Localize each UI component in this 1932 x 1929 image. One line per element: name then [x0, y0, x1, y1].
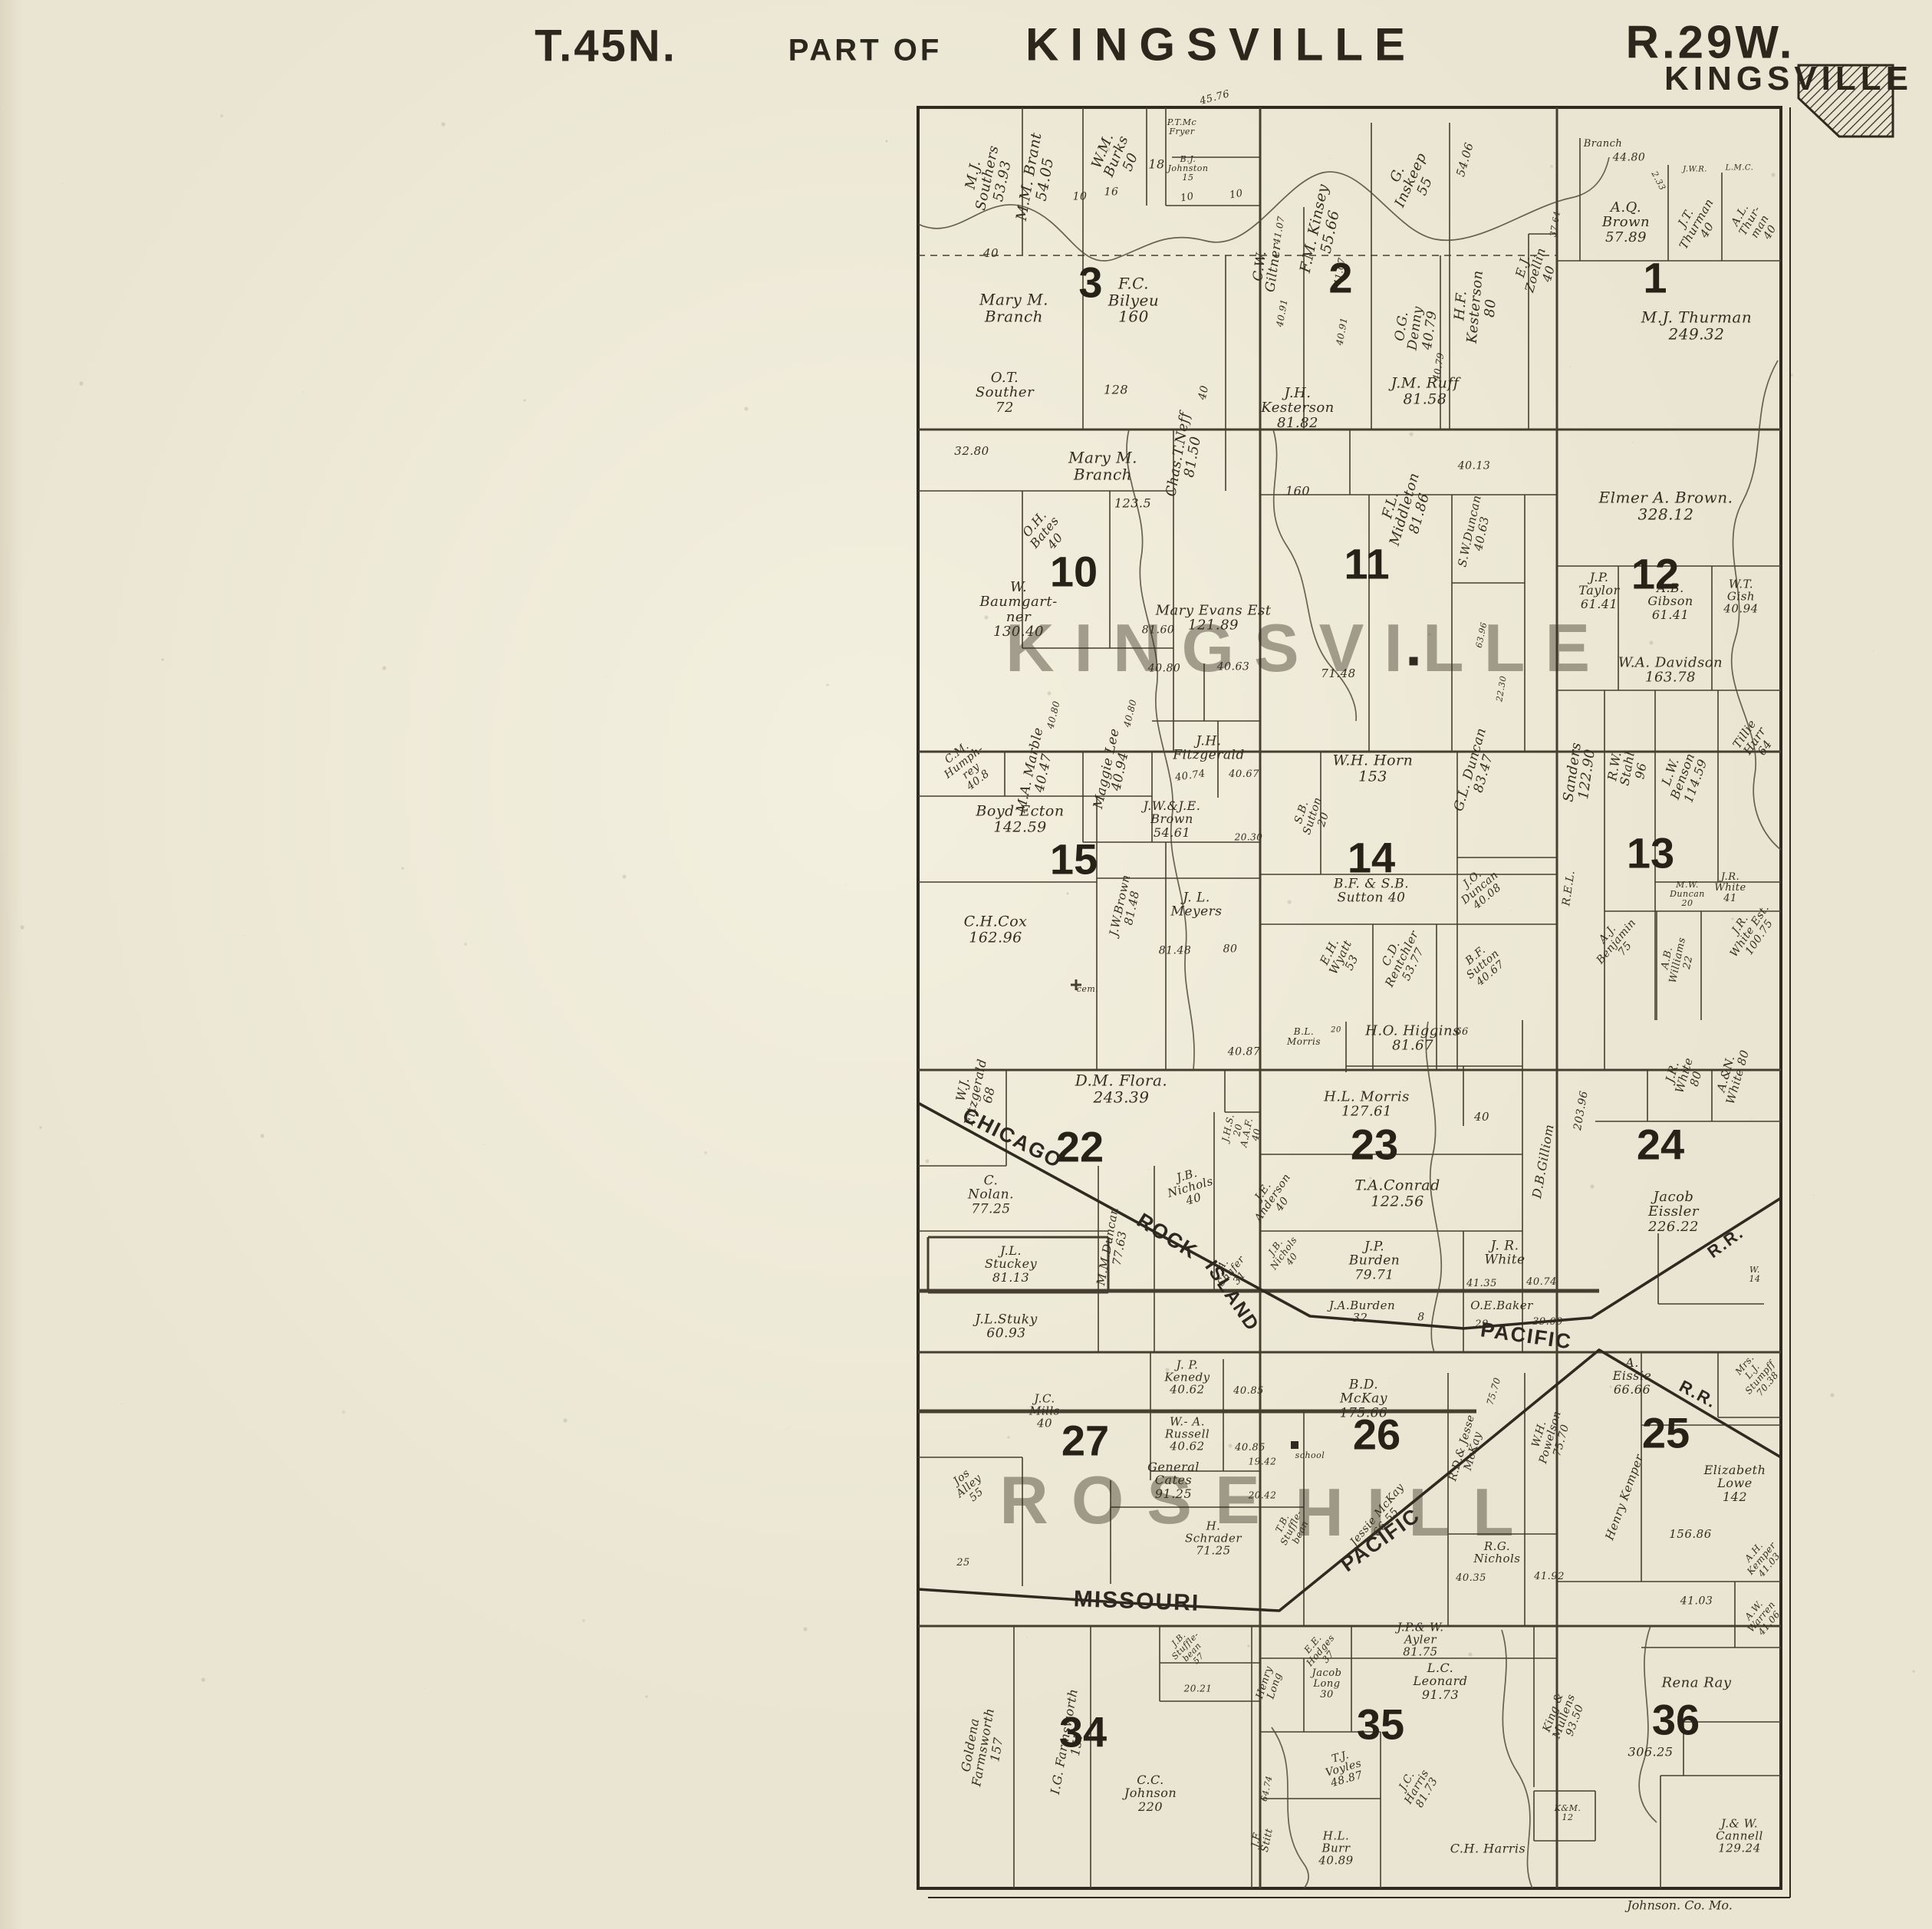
parcel-label: C.C. Johnson 220: [1124, 1773, 1177, 1813]
parcel-label: Elmer A. Brown. 328.12: [1598, 489, 1733, 522]
parcel-label: Jacob Long 30: [1312, 1668, 1342, 1700]
parcel-label: Mary M. Branch: [979, 291, 1048, 324]
parcel-label: 306.25: [1628, 1745, 1674, 1758]
parcel-label: W.A. Davidson 163.78: [1618, 656, 1723, 686]
parcel-label: J.M. Ruff 81.58: [1391, 375, 1460, 407]
parcel-label: 41.35: [1466, 1279, 1497, 1289]
section-number: 34: [1059, 1707, 1107, 1757]
parcel-label: J.R. White 41: [1714, 872, 1746, 904]
parcel-label: J.L. Stuckey 81.13: [985, 1244, 1037, 1284]
parcel-label: 40: [983, 247, 999, 259]
town-overprint-label: KINGSVILLE: [1005, 609, 1610, 687]
parcel-label: J. P. Kenedy 40.62: [1164, 1359, 1210, 1397]
parcel-label: R.W. Stahl 96: [1605, 748, 1651, 788]
parcel-label: 128: [1104, 383, 1128, 396]
section-number: 13: [1627, 828, 1674, 878]
parcel-label: General Cates 91.25: [1147, 1460, 1200, 1500]
section-number: 22: [1056, 1122, 1104, 1172]
parcel-label: 40.67: [1229, 769, 1259, 780]
parcel-label: J.W.&J.E. Brown 54.61: [1144, 799, 1201, 839]
parcel-label: M.J. Thurman 249.32: [1641, 309, 1752, 342]
parcel-label: 20: [1331, 1027, 1341, 1035]
parcel-label: A.Q. Brown 57.89: [1602, 200, 1650, 245]
parcel-label: Mary M. Branch: [1068, 449, 1137, 482]
parcel-label: J. R. White: [1484, 1239, 1525, 1268]
parcel-label: A. Eissie 66.66: [1613, 1356, 1652, 1396]
section-number: 35: [1357, 1700, 1404, 1750]
parcel-label: W. 14: [1749, 1266, 1761, 1284]
parcel-label: J.L.Stuky 60.93: [975, 1313, 1037, 1341]
parcel-label: 40.35: [1456, 1573, 1486, 1584]
parcel-label: cem.: [1077, 985, 1099, 994]
parcel-label: J.W.R.: [1683, 166, 1707, 175]
section-number: 1: [1643, 253, 1667, 303]
parcel-label: M.W. Duncan 20: [1670, 881, 1705, 908]
parcel-label: 20.30: [1235, 833, 1263, 843]
parcel-label: Elizabeth Lowe 142: [1704, 1463, 1766, 1503]
parcel-label: L.C. Leonard 91.73: [1414, 1661, 1468, 1701]
parcel-label: B.J. Johnston 15: [1168, 155, 1209, 183]
parcel-label: W.T. Gish 40.94: [1723, 578, 1758, 616]
parcel-label: 25: [956, 1558, 970, 1569]
section-number: 2: [1328, 253, 1352, 303]
parcel-label: J.P. Taylor 61.41: [1578, 571, 1619, 611]
section-number: 12: [1631, 549, 1679, 599]
parcel-label: Boyd Ecton 142.59: [976, 803, 1064, 834]
parcel-label: W. Baumgart- ner 130.40: [979, 580, 1057, 640]
parcel-label: 80: [1223, 943, 1238, 955]
parcel-label: 40.63: [1217, 661, 1250, 673]
parcel-label: Branch: [1584, 139, 1623, 150]
parcel-label: Jacob Eissler 226.22: [1648, 1190, 1699, 1234]
parcel-label: O.E.Baker: [1470, 1299, 1533, 1312]
section-number: 11: [1344, 539, 1389, 589]
parcel-label: J. L. Meyers: [1171, 891, 1223, 920]
parcel-label: 81.48: [1159, 945, 1192, 956]
section-number: 15: [1050, 834, 1098, 884]
parcel-label: O.G. Denny 40.79: [1392, 304, 1440, 354]
section-number: 36: [1652, 1695, 1700, 1745]
parcel-label: C.H. Harris: [1450, 1842, 1526, 1855]
parcel-label: Rena Ray: [1661, 1675, 1731, 1690]
parcel-label: W.- A. Russell 40.62: [1165, 1416, 1210, 1453]
parcel-label: 41.92: [1534, 1572, 1565, 1582]
parcel-label: 40.85: [1233, 1386, 1264, 1397]
parcel-label: 66: [1455, 1027, 1469, 1038]
parcel-label: 40.80: [1148, 663, 1181, 674]
section-number: 14: [1348, 833, 1395, 883]
parcel-label: 19.42: [1249, 1457, 1277, 1467]
parcel-label: 18: [1148, 157, 1164, 170]
parcel-label: 156.86: [1669, 1528, 1712, 1540]
parcel-label: 71.48: [1321, 667, 1355, 680]
parcel-label: H.O. Higgins 81.67: [1365, 1024, 1460, 1054]
parcel-label: 160: [1285, 484, 1310, 497]
parcel-label: 16: [1104, 186, 1119, 198]
parcel-label: 8: [1417, 1312, 1424, 1323]
parcel-label: O.T. Souther 72: [976, 370, 1034, 415]
section-number: 25: [1642, 1408, 1690, 1458]
section-number: 10: [1050, 547, 1098, 597]
parcel-label: 44.80: [1613, 152, 1646, 163]
parcel-label: W.H. Horn 153: [1333, 752, 1414, 784]
parcel-label: 40.87: [1228, 1046, 1261, 1058]
plat-map-page: T.45N. PART OF KINGSVILLE R.29W. KINGSVI…: [0, 0, 1932, 1929]
section-number: 27: [1061, 1416, 1109, 1466]
parcel-label: B.L. Morris: [1287, 1027, 1321, 1047]
parcel-label: K&M. 12: [1555, 1804, 1581, 1822]
town-name-label: KINGSVILLE: [1664, 60, 1913, 98]
parcel-label: C. Nolan. 77.25: [968, 1174, 1014, 1216]
parcel-label: 32.80: [954, 445, 989, 457]
parcel-label: H.L. Burr 40.89: [1318, 1830, 1353, 1868]
section-number: 26: [1353, 1410, 1400, 1460]
parcel-label: J.A.Burden 32.: [1329, 1299, 1395, 1324]
parcel-label: 41.03: [1680, 1595, 1713, 1607]
parcel-label: J.& W. Cannell 129.24: [1716, 1818, 1763, 1855]
parcel-label: 10: [1073, 191, 1088, 202]
parcel-label: H. Schrader 71.25: [1185, 1520, 1242, 1558]
section-number: 23: [1351, 1120, 1398, 1170]
parcel-label: J.C. Mills 40: [1029, 1393, 1060, 1430]
parcel-label: J.H. Fitzgerald: [1173, 735, 1245, 763]
parcel-label: F.C. Bilyeu 160: [1108, 276, 1160, 326]
credit-label: Johnson. Co. Mo.: [1627, 1898, 1733, 1913]
parcel-label: 123.5: [1114, 496, 1151, 509]
section-number: 24: [1637, 1120, 1684, 1170]
parcel-label: P.T.Mc Fryer: [1167, 118, 1196, 137]
parcel-label: 20.21: [1184, 1684, 1213, 1694]
parcel-label: T.A.Conrad 122.56: [1354, 1177, 1440, 1209]
parcel-label: H.F. Kesterson 80: [1450, 268, 1501, 345]
parcel-label: J.P.& W. Ayler 81.75: [1397, 1621, 1443, 1659]
parcel-label: 10: [1229, 189, 1244, 202]
section-number: 3: [1078, 258, 1102, 308]
parcel-label: 40.74: [1526, 1277, 1557, 1288]
map-canvas: [0, 0, 1932, 1929]
parcel-label: C.H.Cox 162.96: [964, 913, 1028, 945]
parcel-label: J.P. Burden 79.71: [1349, 1239, 1400, 1282]
parcel-label: 40.13: [1458, 460, 1491, 472]
parcel-label: 40.85: [1235, 1443, 1266, 1453]
railroad-label: MISSOURI: [1073, 1586, 1200, 1617]
parcel-label: 20.42: [1249, 1491, 1277, 1501]
parcel-label: 10: [1180, 192, 1195, 205]
parcel-label: L.M.C.: [1726, 165, 1754, 173]
parcel-label: R.G. Nichols: [1473, 1540, 1520, 1565]
parcel-label: 40: [1474, 1111, 1489, 1123]
parcel-label: D.M. Flora. 243.39: [1075, 1072, 1168, 1105]
parcel-label: school: [1295, 1451, 1325, 1460]
parcel-label: J.H. Kesterson 81.82: [1261, 386, 1335, 430]
parcel-label: H.L. Morris 127.61: [1324, 1090, 1410, 1120]
parcel-label: 81.60: [1142, 624, 1175, 636]
